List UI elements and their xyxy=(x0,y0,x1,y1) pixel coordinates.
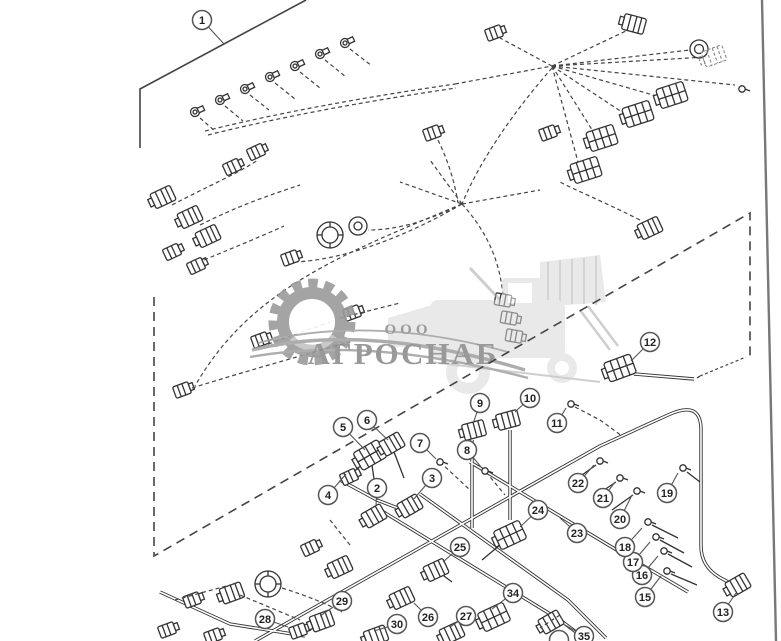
exploded-view-solid-border xyxy=(140,0,306,148)
callout-26[interactable]: 26 xyxy=(414,603,438,627)
callout-11[interactable]: 11 xyxy=(548,408,567,433)
callout-22[interactable]: 22 xyxy=(569,465,595,493)
callout-number: 1 xyxy=(199,15,205,27)
callout-number: 16 xyxy=(636,570,648,582)
exploded-view-dashed-border xyxy=(154,213,750,556)
watermark-company-name: АГРОСНАБ xyxy=(308,336,499,371)
callout-8[interactable]: 8 xyxy=(458,441,482,468)
callout-number: 9 xyxy=(477,398,483,410)
watermark: ООО АГРОСНАБ xyxy=(250,255,618,394)
callout-number: 21 xyxy=(597,493,609,505)
callout-number: 20 xyxy=(614,514,626,526)
wiring-harness-diagram: ООО АГРОСНАБ xyxy=(0,0,781,641)
callout-number: 28 xyxy=(259,614,271,626)
page-edge-line xyxy=(762,0,776,641)
callout-4[interactable]: 4 xyxy=(319,474,347,505)
callout-number: 4 xyxy=(325,490,332,502)
callout-19[interactable]: 19 xyxy=(658,473,679,503)
callout-number: 27 xyxy=(460,611,472,623)
callout-number: 34 xyxy=(507,588,520,600)
callout-number: 8 xyxy=(464,445,470,457)
callout-number: 22 xyxy=(572,478,584,490)
callout-number: 23 xyxy=(571,528,583,540)
callout-24[interactable]: 24 xyxy=(520,501,548,528)
callout-number: 17 xyxy=(627,557,639,569)
callout-number: 35 xyxy=(578,631,590,641)
callout-1[interactable]: 1 xyxy=(193,11,225,45)
callout-number: 7 xyxy=(417,438,423,450)
parts-diagram-page: ООО АГРОСНАБ xyxy=(0,0,781,641)
callout-number: 11 xyxy=(551,418,563,430)
callout-number: 18 xyxy=(619,542,631,554)
callout-number: 25 xyxy=(454,542,466,554)
callout-7[interactable]: 7 xyxy=(411,434,437,460)
callout-20[interactable]: 20 xyxy=(611,495,633,529)
callout-number: 10 xyxy=(524,393,536,405)
callout-number: 15 xyxy=(639,592,651,604)
callout-number: 26 xyxy=(422,612,434,624)
callout-23[interactable]: 23 xyxy=(560,518,587,543)
callout-9[interactable]: 9 xyxy=(471,394,490,422)
callout-3[interactable]: 3 xyxy=(413,469,442,501)
callout-18[interactable]: 18 xyxy=(616,528,643,557)
callout-27[interactable]: 27 xyxy=(450,607,476,628)
callout-10[interactable]: 10 xyxy=(515,389,540,413)
callout-number: 19 xyxy=(661,488,673,500)
callout-number: 29 xyxy=(336,596,348,608)
callout-28[interactable]: 28 xyxy=(256,610,289,629)
callout-number: 5 xyxy=(340,422,346,434)
callout-number: 3 xyxy=(429,473,435,485)
callout-number: 6 xyxy=(364,415,370,427)
callout-number: 12 xyxy=(644,337,656,349)
callout-number: 2 xyxy=(374,483,380,495)
callout-number: 30 xyxy=(391,619,403,631)
callout-number: 24 xyxy=(532,505,545,517)
callout-21[interactable]: 21 xyxy=(594,482,616,508)
callout-34[interactable]: 34 xyxy=(492,584,523,610)
callout-partial[interactable] xyxy=(550,631,569,641)
callout-13[interactable]: 13 xyxy=(714,593,737,622)
callout-12[interactable]: 12 xyxy=(631,333,660,362)
callout-circle[interactable] xyxy=(550,631,569,641)
callout-number: 13 xyxy=(717,607,729,619)
callout-35[interactable]: 35 xyxy=(565,625,594,641)
